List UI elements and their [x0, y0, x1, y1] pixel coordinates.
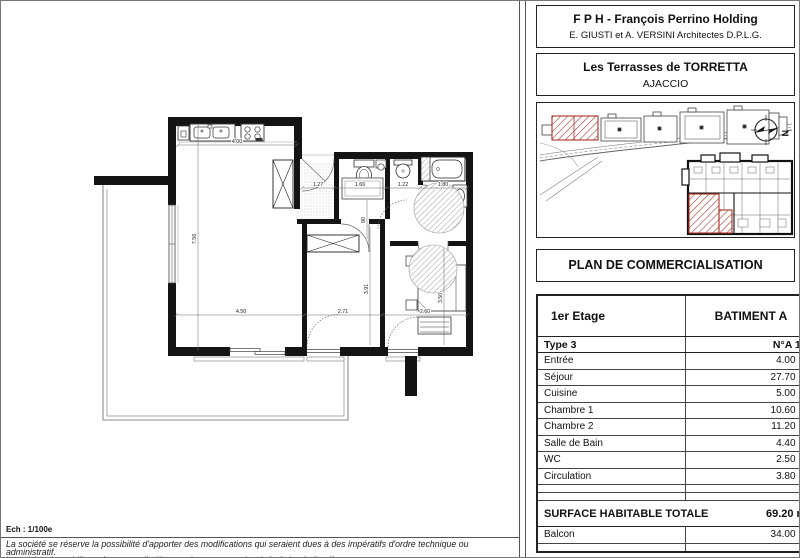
stove — [241, 124, 264, 141]
turning-circle-bath — [414, 183, 464, 233]
building-label: BATIMENT A — [686, 295, 800, 337]
column-separator-inner — [525, 1, 526, 557]
total-label: SURFACE HABITABLE TOTALE — [544, 508, 708, 520]
site-plan-box: N — [536, 102, 795, 238]
company-box: F P H - François Perrino Holding E. GIUS… — [536, 5, 795, 48]
table-header-row: 1er Etage BATIMENT A — [537, 295, 800, 337]
area-table-wrap: 1er Etage BATIMENT A Type 3 N°A 1-1 Entr… — [536, 294, 800, 553]
balcony-label: Balcon — [537, 527, 686, 544]
bathtub — [421, 157, 465, 181]
plan-sheet: 4.00 7.56 1.27 1.66 1.22 1.80 90 4.50 2.… — [0, 0, 800, 558]
table-type-row: Type 3 N°A 1-1 — [537, 337, 800, 353]
disclaimer: La société se réserve la possibilité d'a… — [6, 540, 516, 558]
balcony-area: 34.00 m² — [686, 527, 800, 544]
dim-sejour: 4.50 — [236, 309, 246, 315]
table-total-row: SURFACE HABITABLE TOTALE 69.20 m² — [537, 501, 800, 527]
table-empty-row — [537, 485, 800, 493]
table-row: Chambre 1 10.60 m² — [537, 402, 800, 419]
plan-title: PLAN DE COMMERCIALISATION — [568, 258, 762, 272]
hand-basin — [376, 160, 386, 170]
table-row: Circulation 3.80 m² — [537, 468, 800, 485]
dim-shower: 1.22 — [398, 182, 408, 188]
table-empty-row — [537, 493, 800, 501]
turning-circle-bedroom — [409, 245, 457, 293]
project-city: AJACCIO — [537, 78, 794, 90]
table-row: Cuisine 5.00 m² — [537, 386, 800, 403]
wardrobe-tall — [273, 160, 293, 208]
footer-divider — [1, 537, 519, 538]
dim-ch2-d: 3.50 — [438, 293, 444, 303]
unit-label: N°A 1-1 — [686, 337, 800, 353]
dim-wc: 1.66 — [355, 182, 365, 188]
dim-ch1-d: 3.91 — [364, 284, 370, 294]
site-plan: N — [538, 103, 794, 236]
wardrobe-bedroom1 — [307, 235, 359, 252]
north-label: N — [780, 130, 790, 137]
table-row: Entrée 4.00 m² — [537, 353, 800, 370]
project-name: Les Terrasses de TORRETTA — [537, 60, 794, 74]
floor-label: 1er Etage — [537, 295, 686, 337]
kitchen-sink — [190, 124, 235, 141]
project-box: Les Terrasses de TORRETTA AJACCIO — [536, 53, 795, 96]
disclaimer-line1: La société se réserve la possibilité d'a… — [6, 540, 516, 556]
total-area: 69.20 m² — [766, 508, 800, 520]
living-room-slider — [230, 349, 285, 355]
building-inset-plan — [682, 153, 792, 234]
architects-line: E. GIUSTI et A. VERSINI Architectes D.P.… — [537, 30, 794, 41]
dim-top: 4.00 — [232, 139, 242, 145]
highlighted-building — [552, 116, 598, 140]
table-balcony-row: Balcon 34.00 m² — [537, 527, 800, 544]
left-window — [169, 205, 178, 283]
washbasin — [394, 160, 412, 178]
table-row: Séjour 27.70 m² — [537, 369, 800, 386]
table-row: Chambre 2 11.20 m² — [537, 419, 800, 436]
dim-bath: 1.80 — [438, 182, 448, 188]
dim-left: 7.56 — [192, 234, 198, 244]
dim-door: 90 — [361, 217, 367, 223]
type-label: Type 3 — [537, 337, 686, 353]
site-buildings — [542, 106, 787, 144]
company-name: F P H - François Perrino Holding — [537, 12, 794, 26]
dim-ch2-w: 2.60 — [420, 309, 430, 315]
plan-title-box: PLAN DE COMMERCIALISATION — [536, 249, 795, 282]
area-table: 1er Etage BATIMENT A Type 3 N°A 1-1 Entr… — [536, 294, 800, 553]
highlighted-unit — [689, 194, 719, 233]
dim-entry: 1.27 — [313, 182, 323, 188]
column-separator-outer — [519, 1, 520, 557]
dim-ch1-w: 2.71 — [338, 309, 348, 315]
table-row: Salle de Bain 4.40 m² — [537, 435, 800, 452]
scale-label: Ech : 1/100e — [6, 525, 52, 534]
table-empty-row — [537, 543, 800, 552]
dresser — [418, 317, 451, 334]
floor-plan: 4.00 7.56 1.27 1.66 1.22 1.80 90 4.50 2.… — [1, 1, 519, 537]
table-row: WC 2.50 m² — [537, 452, 800, 469]
window-sills — [194, 357, 420, 361]
